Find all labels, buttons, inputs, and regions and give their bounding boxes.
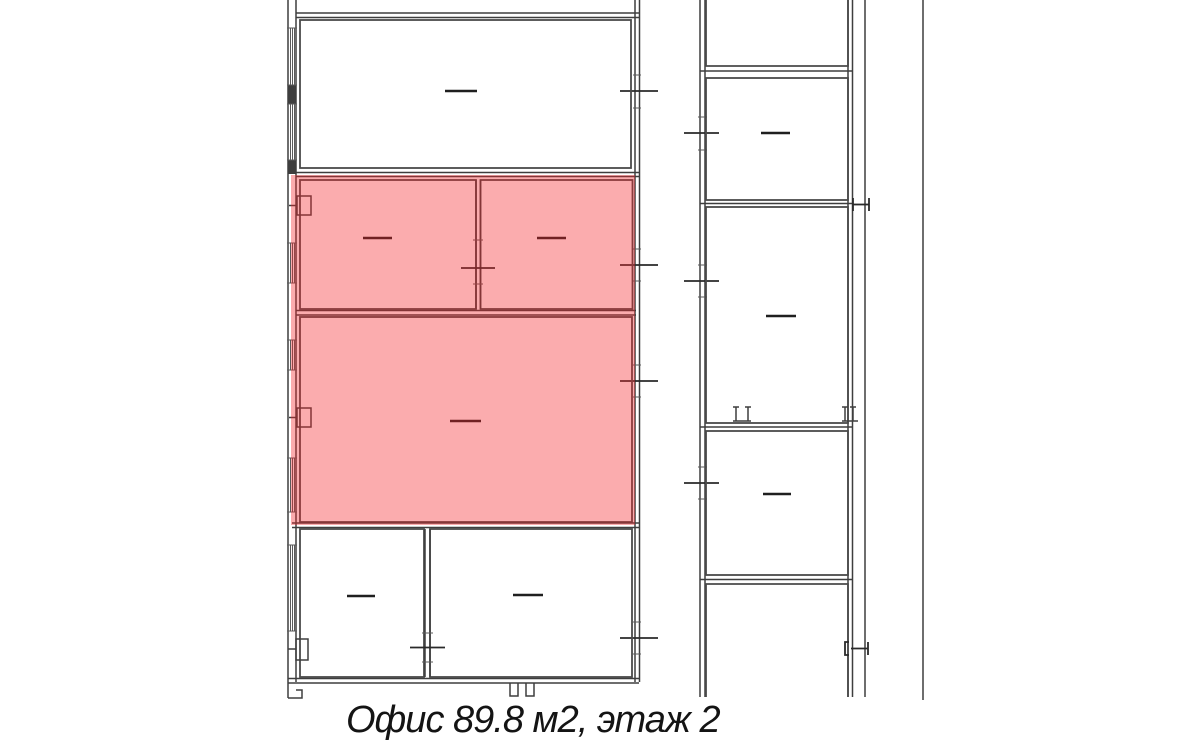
wall-block [288, 85, 296, 104]
bottom-divider-wall [410, 529, 445, 677]
room-bottom-right [430, 529, 632, 677]
door-frame [526, 683, 534, 696]
door-frame [288, 639, 308, 660]
wall-block [288, 160, 296, 174]
room-top-white [300, 20, 631, 168]
right-room-5 [706, 584, 868, 697]
right-room-4 [700, 431, 852, 580]
highlight-overlay [291, 175, 635, 525]
door-frame [733, 407, 751, 421]
right-room-1 [700, 0, 852, 71]
door-mark [853, 198, 869, 211]
door-frame [510, 683, 518, 696]
left-building [287, 0, 658, 698]
right-building [684, 0, 923, 700]
top-fragment-wall [296, 13, 639, 18]
floor-plan [0, 0, 1200, 745]
floor-plan-svg [0, 0, 1200, 745]
right-building-left-wall [684, 0, 719, 697]
right-room-3 [700, 207, 858, 427]
bottom-wall [288, 679, 639, 697]
caption: Офис 89.8 м2, этаж 2 [346, 699, 720, 742]
wall-foot [288, 690, 302, 698]
room-bottom-left [288, 529, 424, 677]
door-frame [842, 407, 858, 421]
right-room-2 [700, 78, 869, 211]
